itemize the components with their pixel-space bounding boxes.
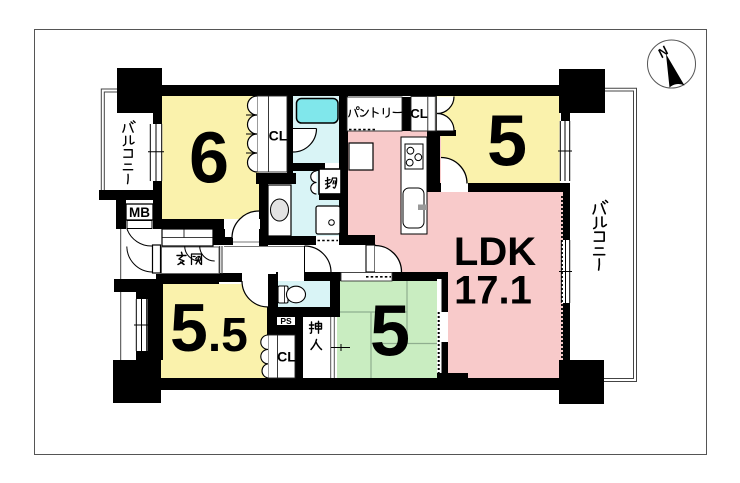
svg-text:CL: CL — [410, 106, 427, 121]
svg-text:LDK: LDK — [454, 230, 536, 274]
svg-text:PS: PS — [280, 316, 292, 326]
svg-text:CL: CL — [269, 128, 288, 144]
svg-text:6: 6 — [189, 119, 229, 199]
svg-text:5: 5 — [370, 292, 410, 372]
svg-text:17.1: 17.1 — [454, 269, 532, 313]
svg-text:5: 5 — [487, 102, 527, 182]
svg-text:MB: MB — [129, 205, 150, 220]
svg-text:CL: CL — [277, 349, 296, 365]
